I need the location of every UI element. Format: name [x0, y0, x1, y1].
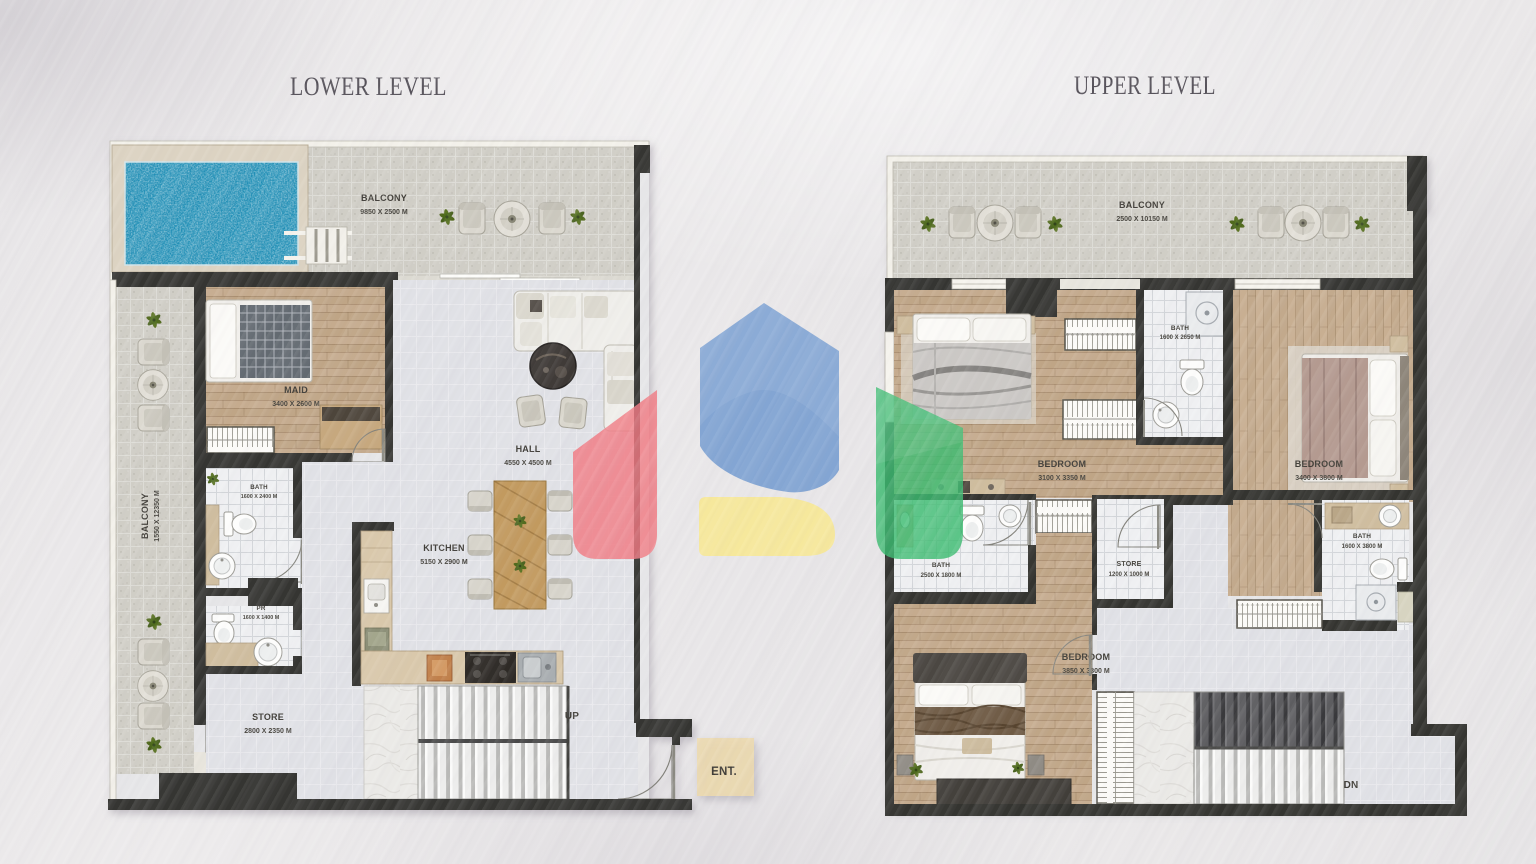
svg-text:1600 X 2400 M: 1600 X 2400 M [241, 494, 278, 500]
svg-text:STORE: STORE [1117, 561, 1142, 568]
svg-text:BALCONY: BALCONY [1119, 200, 1165, 210]
svg-text:BEDROOM: BEDROOM [1062, 652, 1110, 662]
svg-text:UP: UP [565, 711, 579, 722]
svg-text:BATH: BATH [1353, 533, 1371, 540]
svg-text:3400 X 3800 M: 3400 X 3800 M [1295, 475, 1343, 482]
svg-text:1600 X 2650 M: 1600 X 2650 M [1160, 335, 1201, 341]
svg-text:3400 X 2600 M: 3400 X 2600 M [272, 401, 320, 408]
svg-text:1600 X 1400 M: 1600 X 1400 M [243, 615, 280, 621]
svg-text:DN: DN [1344, 780, 1359, 791]
svg-text:2800 X 2350 M: 2800 X 2350 M [244, 728, 292, 735]
svg-text:9850 X 2500 M: 9850 X 2500 M [360, 209, 408, 216]
svg-text:1200 X 1000 M: 1200 X 1000 M [1109, 572, 1150, 578]
svg-text:2500 X 1800 M: 2500 X 1800 M [921, 573, 962, 579]
svg-text:3100 X 3350 M: 3100 X 3350 M [1038, 475, 1086, 482]
svg-text:ENT.: ENT. [711, 766, 737, 778]
svg-text:5150 X 2900 M: 5150 X 2900 M [420, 559, 468, 566]
svg-text:HALL: HALL [516, 444, 541, 454]
svg-text:2500 X 10150 M: 2500 X 10150 M [1116, 216, 1168, 223]
svg-text:1550 X 12350 M: 1550 X 12350 M [154, 490, 161, 542]
svg-text:BATH: BATH [250, 484, 268, 491]
svg-text:BALCONY: BALCONY [361, 193, 407, 203]
svg-text:KITCHEN: KITCHEN [423, 543, 464, 553]
svg-text:MAID: MAID [284, 385, 308, 395]
svg-text:BATH: BATH [1171, 325, 1189, 332]
svg-text:STORE: STORE [252, 712, 284, 722]
svg-text:BEDROOM: BEDROOM [1295, 459, 1343, 469]
svg-text:BATH: BATH [932, 562, 950, 569]
svg-text:BALCONY: BALCONY [140, 493, 150, 539]
svg-text:PR: PR [257, 605, 266, 612]
svg-text:1600 X 3800 M: 1600 X 3800 M [1342, 544, 1383, 550]
svg-text:4550 X 4500 M: 4550 X 4500 M [504, 460, 552, 467]
svg-text:BEDROOM: BEDROOM [1038, 459, 1086, 469]
